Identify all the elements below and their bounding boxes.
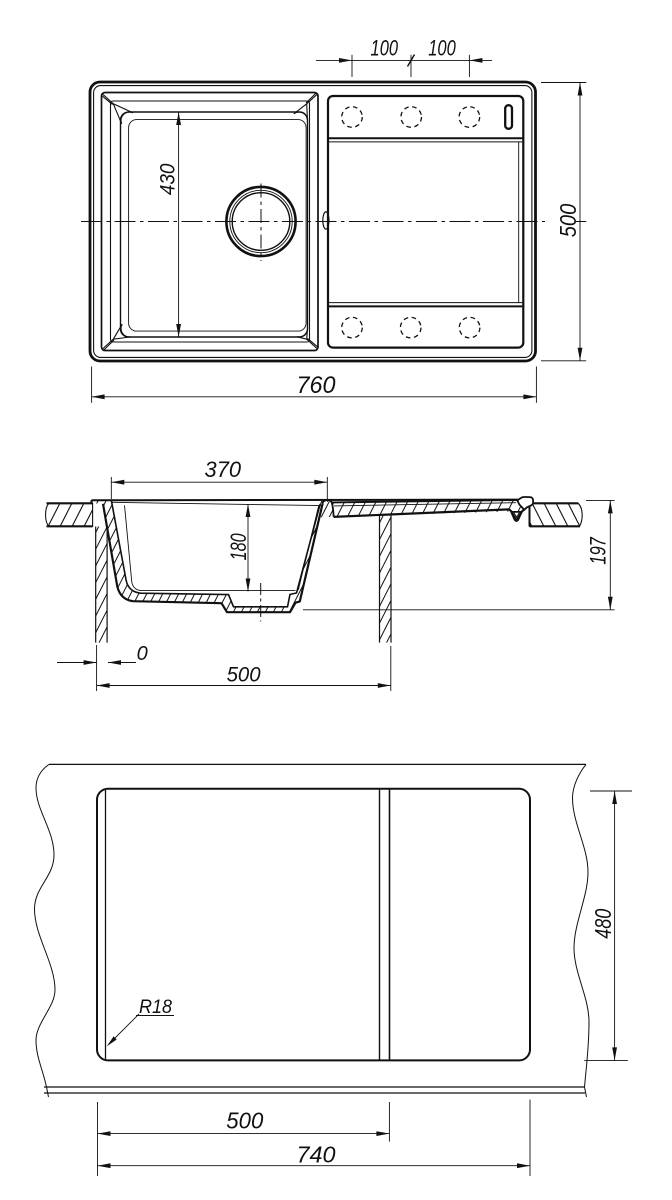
svg-text:500: 500 [555,204,581,238]
svg-text:197: 197 [586,537,611,565]
svg-text:100: 100 [371,35,399,60]
svg-text:740: 740 [297,1142,336,1168]
svg-text:500: 500 [227,664,261,687]
svg-text:370: 370 [205,457,242,482]
svg-text:480: 480 [590,909,616,939]
svg-text:430: 430 [157,163,180,195]
svg-text:100: 100 [428,35,456,60]
svg-text:R18: R18 [139,996,172,1018]
svg-text:760: 760 [297,372,337,399]
svg-text:180: 180 [226,533,251,561]
svg-text:500: 500 [226,1107,263,1133]
svg-text:0: 0 [137,643,148,665]
